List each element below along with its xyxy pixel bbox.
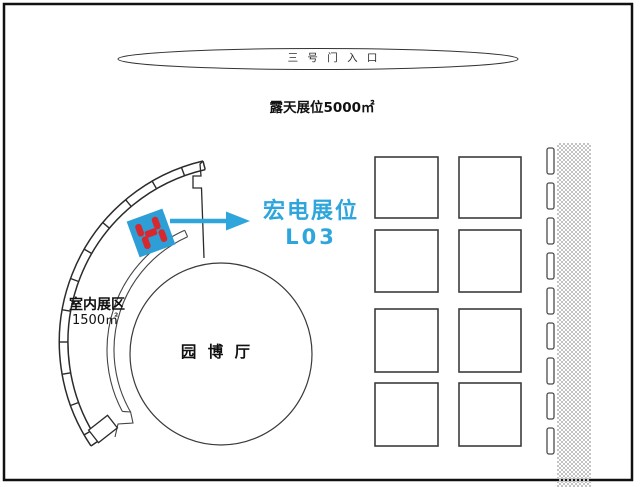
booth-marker (127, 209, 176, 258)
booth-grid (375, 157, 521, 446)
wall-bottom-block (89, 415, 118, 442)
booth-square (459, 309, 521, 372)
side-dock-markers (547, 148, 554, 454)
booth-callout-name: 宏电展位 (263, 200, 359, 224)
booth-square (375, 157, 438, 218)
booth-square (375, 309, 438, 372)
booth-callout-number: L03 (285, 226, 337, 249)
booth-square (375, 230, 438, 292)
booth-square (375, 383, 438, 446)
hatched-strip (557, 143, 591, 487)
pointer-arrow-icon (170, 212, 250, 231)
booth-square (459, 157, 521, 218)
booth-square (459, 230, 521, 292)
entrance-label: 三 号 门 入 口 (288, 53, 381, 65)
indoor-area-label: 室内展区 (69, 298, 125, 313)
hall-label: 园 博 厅 (181, 344, 253, 361)
wall-top-closure (193, 161, 204, 258)
indoor-area-size: 1500㎡ (72, 314, 118, 328)
booth-square (459, 383, 521, 446)
open-air-area-label: 露天展位5000㎡ (269, 101, 374, 116)
floor-plan-canvas: 三 号 门 入 口 露天展位5000㎡ 宏电展位 L03 室内展区 1500㎡ … (0, 0, 640, 487)
